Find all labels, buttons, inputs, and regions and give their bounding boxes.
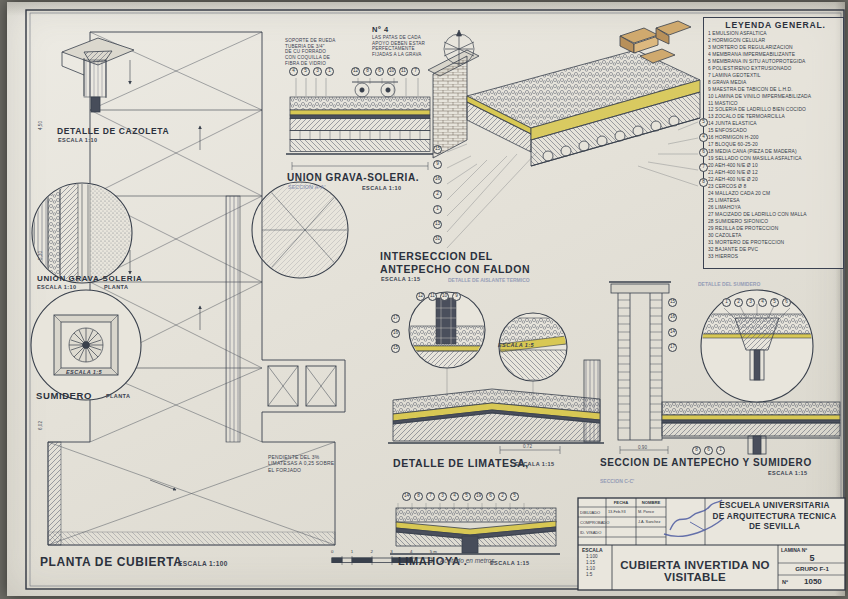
legend-item: 18 MEDIA CAÑA (PIEZA DE MADERA): [708, 149, 843, 156]
circled-marker: 14: [402, 492, 411, 501]
circled-marker: 3: [746, 298, 755, 307]
legend-item: 33 HIERROS: [708, 254, 843, 261]
markers-union-left: 4531: [289, 67, 334, 76]
scale-antepecho-sumidero: ESCALA 1:15: [768, 470, 807, 476]
scale-detalle-limatesa: ESCALA 1:15: [515, 461, 554, 467]
titleblock-row-visado: ID. VISADO: [580, 530, 601, 535]
legend-item: 6 POLIESTIRENO EXTRUSIONADO: [708, 66, 843, 73]
legend-item: 20 AEH-400 N/E Ø 10: [708, 163, 843, 170]
circled-marker: 19: [474, 492, 483, 501]
circled-marker: 15: [433, 145, 442, 154]
note-no4: LAS PATAS DE CADA APOYO DEBEN ESTAR PERF…: [372, 35, 430, 58]
dim-plan-3: 6,02: [38, 421, 43, 430]
circled-marker: 9: [452, 292, 461, 301]
union-grava-soleria-plan-detail: [32, 183, 132, 283]
scale-sumidero-circle: ESCALA 1:5: [66, 369, 102, 375]
caption-union-grava-soleria-planta: UNION GRAVA-SOLERIA: [37, 274, 142, 283]
circled-marker: 1: [433, 205, 442, 214]
faint-seccion-cc: SECCION C-C': [600, 478, 634, 484]
scale-bar-number: 1: [351, 549, 353, 554]
photo-backdrop: LEYENDA GENERAL. 1 EMULSION ASFALTICA2 H…: [0, 0, 848, 599]
circled-marker: 8: [699, 178, 708, 187]
legend-item: 28 SUMIDERO SIFONICO: [708, 219, 843, 226]
cazoleta-axon-detail: [62, 38, 134, 112]
markers-limatesa-col: 171615: [391, 314, 400, 353]
circled-marker: 8: [414, 492, 423, 501]
scale-union-grava-soleria-seccion: ESCALA 1:10: [362, 185, 401, 191]
circled-marker: 6: [782, 298, 791, 307]
legend-item: 8 GRAVA MEDIA: [708, 80, 843, 87]
circled-marker: 16: [391, 329, 400, 338]
markers-antepecho-row: 861: [692, 446, 725, 455]
circled-marker: 6: [486, 492, 495, 501]
scale-limatesa-circle: ESCALA 1:5: [498, 342, 534, 348]
legend-item: 16 HORMIGON H-200: [708, 135, 843, 142]
markers-antepecho-col: 15161417: [668, 298, 677, 352]
circled-marker: 15: [668, 298, 677, 307]
markers-sumidero-arc: 123456: [722, 298, 791, 307]
legend-item: 10 LAMINA DE VINILO IMPERMEABILIZADA: [708, 94, 843, 101]
legend-item: 4 MEMBRANA IMPERMEABILIZANTE: [708, 52, 843, 59]
circled-marker: 31: [433, 235, 442, 244]
lamina-value: 5: [780, 553, 844, 563]
titleblock-col-nombre: NOMBRE: [637, 500, 665, 505]
circled-marker: 6: [375, 67, 384, 76]
circled-marker: 9: [433, 160, 442, 169]
caption-planta-cubierta: PLANTA DE CUBIERTA: [40, 555, 183, 569]
sumidero-plan-detail: [31, 290, 141, 400]
legend-item: 14 JUNTA ELASTICA: [708, 121, 843, 128]
school-name: ESCUELA UNIVERSITARIA DE ARQUITECTURA TE…: [706, 501, 843, 533]
dim-plan-1: 4,50: [38, 121, 43, 130]
legend-item: 30 CAZOLETA: [708, 233, 843, 240]
legend-list: 1 EMULSION ASFALTICA2 HORMIGON CELULAR3 …: [708, 31, 843, 260]
caption-detalle-cazoleta: DETALLE DE CAZOLETA: [57, 126, 169, 136]
legend-item: 7 LAMINA GEOTEXTIL: [708, 73, 843, 80]
circled-marker: 5: [770, 298, 779, 307]
circled-marker: 7: [699, 163, 708, 172]
legend-item: 19 SELLADO CON MASILLA ASFALTICA: [708, 156, 843, 163]
caption-union-grava-soleria-seccion: UNION GRAVA-SOLERIA.: [287, 172, 419, 183]
scale-limahoya: ESCALA 1:15: [490, 560, 529, 566]
circled-marker: 12: [416, 292, 425, 301]
circled-marker: 14: [668, 328, 677, 337]
caption-interseccion-antepecho: INTERSECCION DEL ANTEPECHO CON FALDON: [380, 250, 530, 276]
scale-detalle-cazoleta: ESCALA 1:10: [58, 137, 97, 143]
sheet-title: CUBIERTA INVERTIDA NO VISITABLE: [613, 559, 777, 583]
legend-item: 9 MAESTRA DE TABICON DE L.H.D.: [708, 87, 843, 94]
titleblock-escala-label: ESCALA: [582, 547, 603, 553]
faint-detalle-sumidero: DETALLE DEL SUMIDERO: [698, 281, 760, 287]
dim-limatesa: 0.72: [523, 444, 532, 449]
circled-marker: 11: [399, 67, 408, 76]
scale-bar-labels: 012345 m: [331, 549, 437, 554]
circled-marker: 1: [722, 298, 731, 307]
scale-interseccion: ESCALA 1:15: [381, 276, 420, 282]
caption-detalle-limatesa: DETALLE DE LIMATESA,: [393, 457, 529, 469]
circled-marker: 5: [462, 492, 471, 501]
circled-marker: 3: [313, 67, 322, 76]
circled-marker: 1: [716, 446, 725, 455]
circled-marker: 2: [734, 298, 743, 307]
scale-bar-number: 0: [331, 549, 333, 554]
scale-bar-number: 4: [410, 549, 412, 554]
scale-bar-number: 3: [390, 549, 392, 554]
circled-marker: 17: [391, 314, 400, 323]
titleblock-fecha-dibujado: 13-Feb-93: [608, 510, 626, 514]
circled-marker: 8: [363, 67, 372, 76]
grupo-value: GRUPO F-1: [780, 565, 844, 572]
num-label: Nº: [782, 579, 788, 585]
circled-marker: 13: [433, 220, 442, 229]
legend-title: LEYENDA GENERAL.: [708, 20, 843, 30]
circled-marker: 4: [758, 298, 767, 307]
scale-bar-number: 5 m: [430, 549, 437, 554]
faint-detalle-aislante: DETALLE DE AISLANTE TERMICO: [448, 277, 530, 283]
titleblock-col-fecha: FECHA: [607, 500, 635, 505]
legend-item: 21 AEH-400 N/E Ø 12: [708, 170, 843, 177]
escala-value: 1:5: [586, 572, 598, 578]
legend-item: 31 MORTERO DE PROTECCION: [708, 240, 843, 247]
legend-panel: LEYENDA GENERAL. 1 EMULSION ASFALTICA2 H…: [703, 17, 844, 269]
planta-tag-sumidero: PLANTA: [106, 393, 130, 399]
circled-marker: 10: [387, 67, 396, 76]
union-grava-soleria-section: [286, 78, 433, 170]
legend-item: 32 BAJANTE DE PVC: [708, 247, 843, 254]
circled-marker: 7: [411, 67, 420, 76]
markers-union-right: 128610117: [351, 67, 420, 76]
circled-marker: 4: [289, 67, 298, 76]
markers-axon-right: 54678: [699, 118, 708, 187]
circled-marker: 4: [450, 492, 459, 501]
circled-marker: 5: [510, 492, 519, 501]
legend-item: 17 BLOQUE 60-25-20: [708, 142, 843, 149]
faint-seccion-aa: SECCION A-A': [288, 184, 325, 190]
circled-marker: 7: [426, 492, 435, 501]
legend-item: 15 ENFOSCADO: [708, 128, 843, 135]
label-no4: Nº 4: [372, 25, 389, 34]
markers-axon-left: 15916211331: [433, 145, 442, 244]
scale-bar-number: 2: [370, 549, 372, 554]
circled-marker: 6: [704, 446, 713, 455]
acotado-note: Acotado en metros: [440, 557, 495, 564]
limatesa-section: [388, 292, 604, 454]
markers-limahoya-row: 148734519625: [402, 492, 519, 501]
legend-item: 23 CERCOS Ø 8: [708, 184, 843, 191]
plan-corner-balloon: [252, 182, 348, 278]
circled-marker: 2: [433, 190, 442, 199]
legend-item: 2 HORMIGON CELULAR: [708, 38, 843, 45]
titleblock-escala-list: 1:1001:151:101:5: [586, 554, 598, 578]
circled-marker: 17: [668, 343, 677, 352]
dim-plan-2: 5,30: [38, 251, 43, 260]
antepecho-sumidero-section: [609, 282, 840, 454]
legend-item: 27 MACIZADO DE LADRILLO CON MALLA: [708, 212, 843, 219]
limahoya-section: [390, 503, 560, 554]
circled-marker: 15: [391, 344, 400, 353]
legend-item: 11 MASTICO: [708, 101, 843, 108]
titleblock-nombre-comprobado: J.A. Sanchez: [638, 520, 660, 524]
titleblock-row-dibujado: DIBUJADO: [580, 510, 600, 515]
circled-marker: 11: [428, 292, 437, 301]
legend-item: 24 MALLAZO CADA 20 CM: [708, 191, 843, 198]
titleblock-row-comprobado: COMPROBADO: [580, 520, 609, 525]
legend-item: 5 MEMBRANA IN SITU AUTOPROTEGIDA: [708, 59, 843, 66]
legend-item: 22 AEH-400 N/E Ø 20: [708, 177, 843, 184]
circled-marker: 10: [440, 292, 449, 301]
note-soporte-rueda: SOPORTE DE RUEDA TUBERIA DE 3/4" DE CU F…: [285, 38, 351, 67]
circled-marker: 3: [438, 492, 447, 501]
axonometric-roof: [428, 21, 700, 248]
note-pendiente: PENDIENTE DEL 3% LIMATESAS A 0,25 SOBRE …: [268, 454, 344, 473]
circled-marker: 8: [692, 446, 701, 455]
num-value: 1050: [804, 577, 822, 586]
legend-item: 1 EMULSION ASFALTICA: [708, 31, 843, 38]
legend-item: 3 MORTERO DE REGULARIZACION: [708, 45, 843, 52]
circled-marker: 6: [699, 148, 708, 157]
legend-item: 29 REJILLA DE PROTECCION: [708, 226, 843, 233]
titleblock-nombre-dibujado: M. Ponce: [638, 510, 654, 514]
scanned-drawing-photo: { "colors":{"paper":"#e6e3da","ink":"#39…: [0, 0, 848, 599]
circled-marker: 16: [433, 175, 442, 184]
scale-union-grava-soleria-planta: ESCALA 1:10: [37, 284, 76, 290]
caption-antepecho-sumidero: SECCION DE ANTEPECHO Y SUMIDERO: [600, 457, 812, 468]
dim-antepecho: 0.90: [638, 445, 647, 450]
circled-marker: 12: [351, 67, 360, 76]
legend-item: 26 LIMAHOYA: [708, 205, 843, 212]
circled-marker: 5: [301, 67, 310, 76]
legend-item: 12 SOLERIA DE LADRILLO BIEN COCIDO: [708, 107, 843, 114]
circled-marker: 1: [325, 67, 334, 76]
planta-tag-union: PLANTA: [104, 284, 128, 290]
legend-item: 25 LIMATESA: [708, 198, 843, 205]
caption-sumidero: SUMIDERO: [36, 390, 92, 401]
circled-marker: 2: [498, 492, 507, 501]
circled-marker: 5: [699, 118, 708, 127]
markers-limatesa-row: 1211109: [416, 292, 461, 301]
circled-marker: 4: [699, 133, 708, 142]
circled-marker: 16: [668, 313, 677, 322]
scale-planta-cubierta: ESCALA 1:100: [178, 560, 228, 567]
legend-item: 13 ZOCALO DE TERMOARCILLA: [708, 114, 843, 121]
